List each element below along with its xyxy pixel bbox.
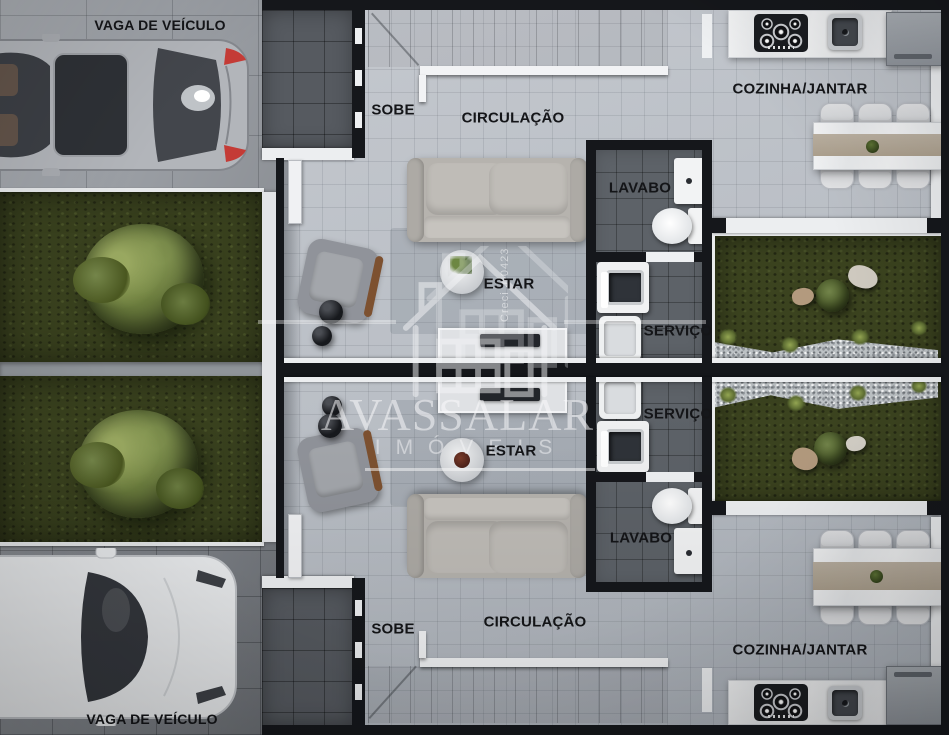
kitchen-sink-top: [828, 14, 862, 50]
stair-railing-top: [420, 66, 668, 75]
stair-railing-bottom-leg: [419, 631, 426, 658]
label-stairs-bottom: SOBE: [371, 621, 414, 638]
cooktop-top: [754, 14, 808, 52]
exterior-wall-top: [262, 0, 949, 10]
lavabo-faucet-bottom: [686, 550, 692, 556]
sill-notch: [927, 218, 941, 233]
door-jamb: [702, 668, 712, 712]
entry-door-bottom: [288, 514, 302, 578]
car-white: [0, 548, 250, 726]
label-kitchen-top: COZINHA/JANTAR: [732, 81, 867, 98]
sill-notch: [927, 501, 941, 515]
table-plant-top: [866, 140, 879, 153]
entry-porch-top: [262, 10, 354, 148]
lavabo-wall-south-bottom: [586, 582, 712, 592]
watermark-underline: [365, 468, 595, 471]
label-circulation-bottom: CIRCULAÇÃO: [484, 614, 587, 631]
label-service-top: SERVIÇO: [644, 323, 713, 340]
fridge-handle: [894, 54, 932, 59]
sofa-bottom: [407, 494, 587, 578]
stair-railing-bottom: [420, 658, 668, 667]
sofa-top: [407, 158, 587, 242]
watermark-brand: AVASSALAR: [300, 388, 615, 441]
car-silver: [0, 34, 260, 176]
toilet-top: [652, 208, 692, 244]
window-slot: [355, 642, 362, 658]
label-parking-top: VAGA DE VEÍCULO: [94, 17, 225, 33]
floor-plan: AVASSALAR IMÓVEIS Creci J-0423 VAGA DE V…: [0, 0, 949, 735]
toilet-bottom: [652, 488, 692, 524]
sill-notch: [712, 218, 726, 233]
staircase-bottom: [368, 666, 668, 723]
window-sill-top: [712, 218, 941, 233]
label-living-top: ESTAR: [484, 276, 535, 293]
grass-tuft: [848, 326, 872, 348]
label-circulation-top: CIRCULAÇÃO: [462, 110, 565, 127]
lavabo-wall-north-top: [586, 140, 712, 150]
exterior-wall-right: [941, 0, 949, 735]
sill-notch: [712, 501, 726, 515]
label-lavabo-bottom: LAVABO: [610, 530, 672, 547]
door-gap: [646, 472, 694, 482]
grass-tuft: [846, 382, 870, 404]
kitchen-sink-bottom: [828, 686, 862, 720]
table-plant-bottom: [870, 570, 883, 583]
grass-tuft: [716, 326, 740, 348]
garden-bush-bottom: [814, 432, 847, 465]
entry-porch-bottom: [262, 588, 354, 725]
door-jamb: [702, 14, 712, 58]
watermark-subtitle: IMÓVEIS: [330, 436, 612, 460]
label-kitchen-bottom: COZINHA/JANTAR: [732, 642, 867, 659]
kitchen-counter-bottom: [728, 680, 892, 725]
cooktop-bottom: [754, 684, 808, 721]
washing-machine-top: [597, 262, 649, 313]
garden-walkway: [0, 362, 264, 376]
gravel-path-bottom: [715, 380, 938, 418]
curb-bottom: [0, 542, 264, 546]
watermark-rule-left: [258, 320, 396, 324]
label-parking-bottom: VAGA DE VEÍCULO: [86, 711, 217, 727]
side-table: [312, 326, 332, 346]
party-wall-sill-bottom: [284, 377, 941, 382]
entry-door-top: [288, 160, 302, 224]
curb-top: [0, 188, 264, 192]
grass-tuft: [784, 392, 808, 414]
label-stairs-top: SOBE: [371, 102, 414, 119]
stair-railing-top-leg: [419, 75, 426, 102]
fridge-handle: [894, 672, 932, 677]
label-living-bottom: ESTAR: [486, 443, 537, 460]
kitchen-counter-top: [728, 10, 892, 58]
window-slot: [355, 600, 362, 616]
watermark-house-logo: [392, 246, 568, 402]
label-lavabo-top: LAVABO: [609, 180, 671, 197]
tree-top: [82, 224, 204, 334]
garden-bush-top: [816, 279, 849, 312]
window-slot: [355, 28, 362, 44]
door-gap: [646, 252, 694, 262]
exterior-wall-bottom: [262, 725, 949, 735]
tree-bottom: [78, 410, 198, 518]
window-sill-bottom: [712, 501, 941, 515]
grass-tuft: [716, 384, 740, 406]
grass-tuft: [908, 318, 930, 338]
window-slot: [355, 70, 362, 86]
window-slot: [355, 684, 362, 700]
window-slot: [355, 112, 362, 128]
label-service-bottom: SERVIÇO: [644, 406, 713, 423]
party-wall: [276, 363, 941, 377]
grass-tuft: [778, 334, 802, 356]
lavabo-faucet-top: [686, 178, 692, 184]
